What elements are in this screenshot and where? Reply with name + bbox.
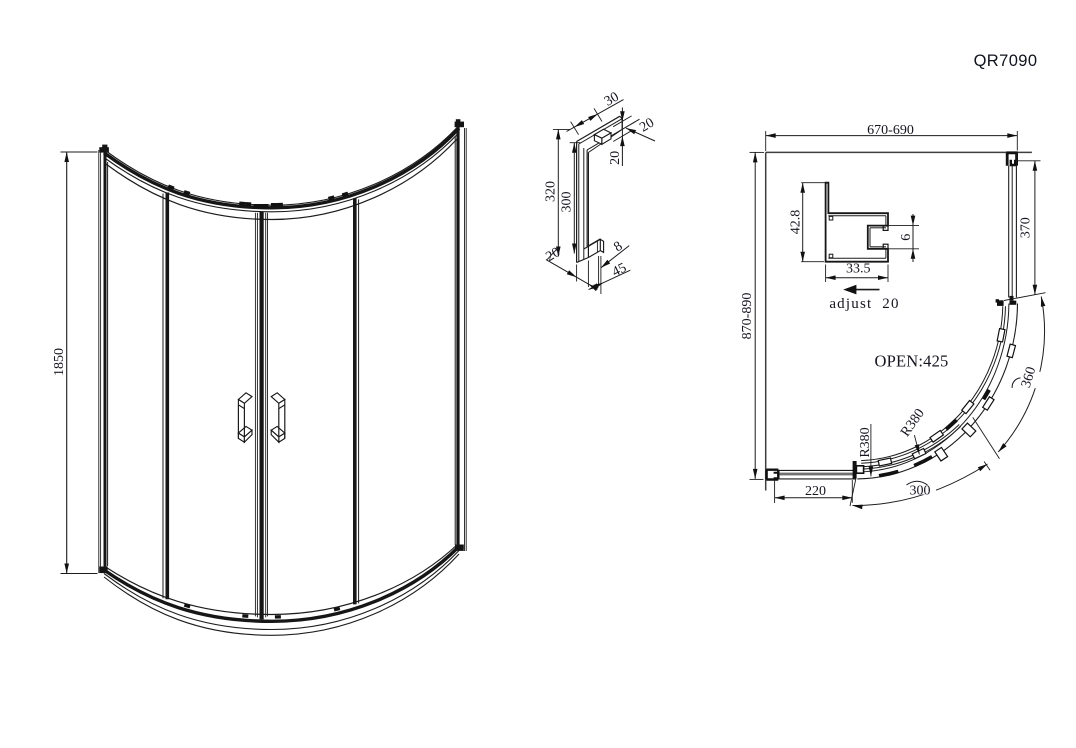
svg-text:370: 370	[1019, 217, 1034, 238]
svg-text:6: 6	[899, 234, 914, 241]
svg-text:300: 300	[910, 484, 931, 499]
svg-text:20: 20	[608, 151, 623, 165]
svg-text:33.5: 33.5	[846, 261, 871, 276]
svg-text:300: 300	[560, 192, 575, 213]
svg-text:1850: 1850	[52, 348, 67, 376]
svg-text:870-890: 870-890	[740, 293, 755, 340]
svg-text:R380: R380	[858, 427, 873, 457]
svg-text:OPEN:425: OPEN:425	[874, 351, 948, 370]
svg-text:42.8: 42.8	[788, 210, 803, 235]
svg-text:adjust 20: adjust 20	[829, 296, 899, 312]
svg-text:220: 220	[805, 484, 826, 499]
svg-text:320: 320	[544, 181, 559, 202]
svg-text:QR7090: QR7090	[974, 52, 1038, 70]
svg-text:670-690: 670-690	[867, 123, 914, 138]
